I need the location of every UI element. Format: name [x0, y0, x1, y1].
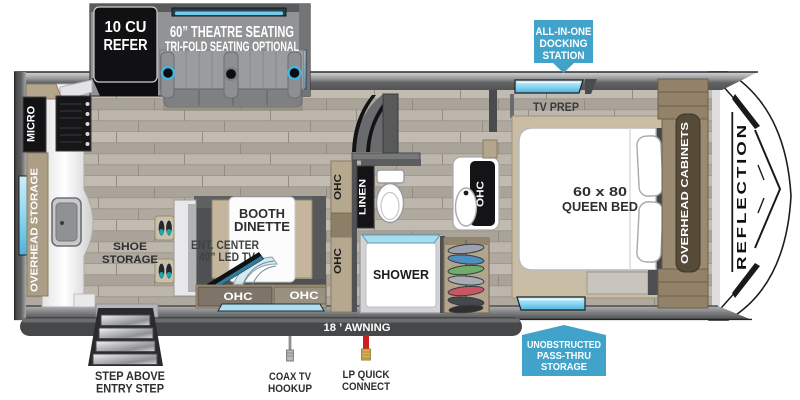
- svg-text:QUEEN BED: QUEEN BED: [562, 199, 638, 214]
- svg-text:OHC: OHC: [224, 291, 253, 303]
- svg-text:TRI-FOLD SEATING OPTIONAL: TRI-FOLD SEATING OPTIONAL: [165, 38, 299, 54]
- svg-text:STATION: STATION: [543, 50, 585, 62]
- svg-text:CONNECT: CONNECT: [342, 381, 390, 393]
- svg-text:DINETTE: DINETTE: [234, 220, 290, 234]
- svg-text:SHOWER: SHOWER: [373, 268, 429, 282]
- svg-text:10 CU: 10 CU: [105, 19, 147, 36]
- svg-text:UNOBSTRUCTED: UNOBSTRUCTED: [527, 340, 601, 351]
- svg-text:STORAGE: STORAGE: [102, 254, 158, 266]
- svg-text:STORAGE: STORAGE: [541, 362, 587, 373]
- svg-text:REFLECTION: REFLECTION: [734, 122, 749, 270]
- svg-text:STEP ABOVE: STEP ABOVE: [95, 371, 165, 383]
- svg-text:SHOE: SHOE: [113, 241, 147, 253]
- svg-text:OHC: OHC: [332, 174, 344, 200]
- svg-text:18 ’ AWNING: 18 ’ AWNING: [324, 322, 391, 334]
- svg-text:ENTRY STEP: ENTRY STEP: [96, 384, 164, 396]
- svg-text:TV PREP: TV PREP: [533, 100, 579, 114]
- svg-text:BOOTH: BOOTH: [239, 207, 285, 221]
- svg-text:REFER: REFER: [104, 37, 148, 54]
- svg-text:MICRO: MICRO: [26, 106, 38, 142]
- svg-text:PASS-THRU: PASS-THRU: [537, 351, 591, 362]
- svg-text:LINEN: LINEN: [358, 179, 369, 215]
- svg-text:OVERHEAD STORAGE: OVERHEAD STORAGE: [30, 168, 41, 292]
- svg-text:COAX TV: COAX TV: [269, 371, 312, 383]
- svg-text:OHC: OHC: [290, 290, 319, 302]
- svg-text:OHC: OHC: [332, 248, 344, 274]
- svg-text:60 x 80: 60 x 80: [573, 184, 627, 199]
- svg-text:ALL-IN-ONE: ALL-IN-ONE: [536, 26, 592, 38]
- svg-text:OVERHEAD CABINETS: OVERHEAD CABINETS: [679, 122, 691, 264]
- svg-text:DOCKING: DOCKING: [540, 38, 588, 50]
- svg-text:LP QUICK: LP QUICK: [343, 369, 390, 381]
- svg-text:HOOKUP: HOOKUP: [268, 383, 312, 395]
